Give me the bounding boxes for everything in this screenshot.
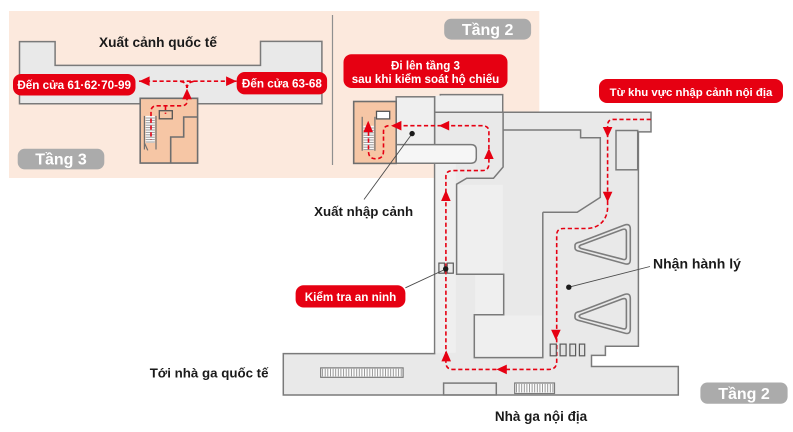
svg-text:Xuất nhập cảnh: Xuất nhập cảnh — [314, 204, 413, 219]
svg-text:Từ khu vực nhập cảnh nội địa: Từ khu vực nhập cảnh nội địa — [610, 87, 773, 99]
svg-text:Tầng 2: Tầng 2 — [718, 386, 770, 403]
svg-text:Đến cửa 63-68: Đến cửa 63-68 — [242, 78, 322, 91]
svg-text:sau khi kiểm soát hộ chiếu: sau khi kiểm soát hộ chiếu — [352, 73, 500, 86]
svg-text:Kiểm tra an ninh: Kiểm tra an ninh — [305, 291, 397, 304]
svg-text:Đi lên tầng 3: Đi lên tầng 3 — [391, 60, 460, 73]
svg-text:Tầng 3: Tầng 3 — [35, 151, 87, 168]
svg-text:Nhà ga nội địa: Nhà ga nội địa — [495, 409, 588, 424]
svg-text:Xuất cảnh quốc tế: Xuất cảnh quốc tế — [99, 35, 217, 50]
svg-text:Nhận hành lý: Nhận hành lý — [653, 256, 741, 272]
svg-text:Đến cửa 61·62·70-99: Đến cửa 61·62·70-99 — [17, 79, 131, 92]
svg-text:Tầng 2: Tầng 2 — [462, 22, 514, 39]
svg-text:Tới nhà ga quốc tế: Tới nhà ga quốc tế — [150, 366, 269, 381]
